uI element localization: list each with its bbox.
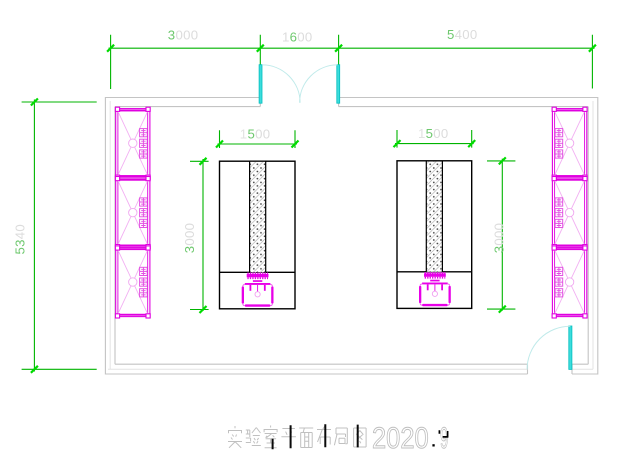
svg-text:9: 9 (440, 422, 448, 455)
svg-text:1600: 1600 (282, 30, 313, 45)
svg-text:3000: 3000 (491, 223, 506, 254)
svg-text:3000: 3000 (182, 223, 197, 254)
svg-text:2020: 2020 (372, 422, 429, 455)
svg-text:1500: 1500 (418, 126, 449, 141)
svg-text:3000: 3000 (168, 28, 199, 43)
svg-text:5400: 5400 (447, 27, 478, 42)
svg-text:5340: 5340 (13, 224, 28, 255)
svg-text:1500: 1500 (240, 126, 271, 141)
